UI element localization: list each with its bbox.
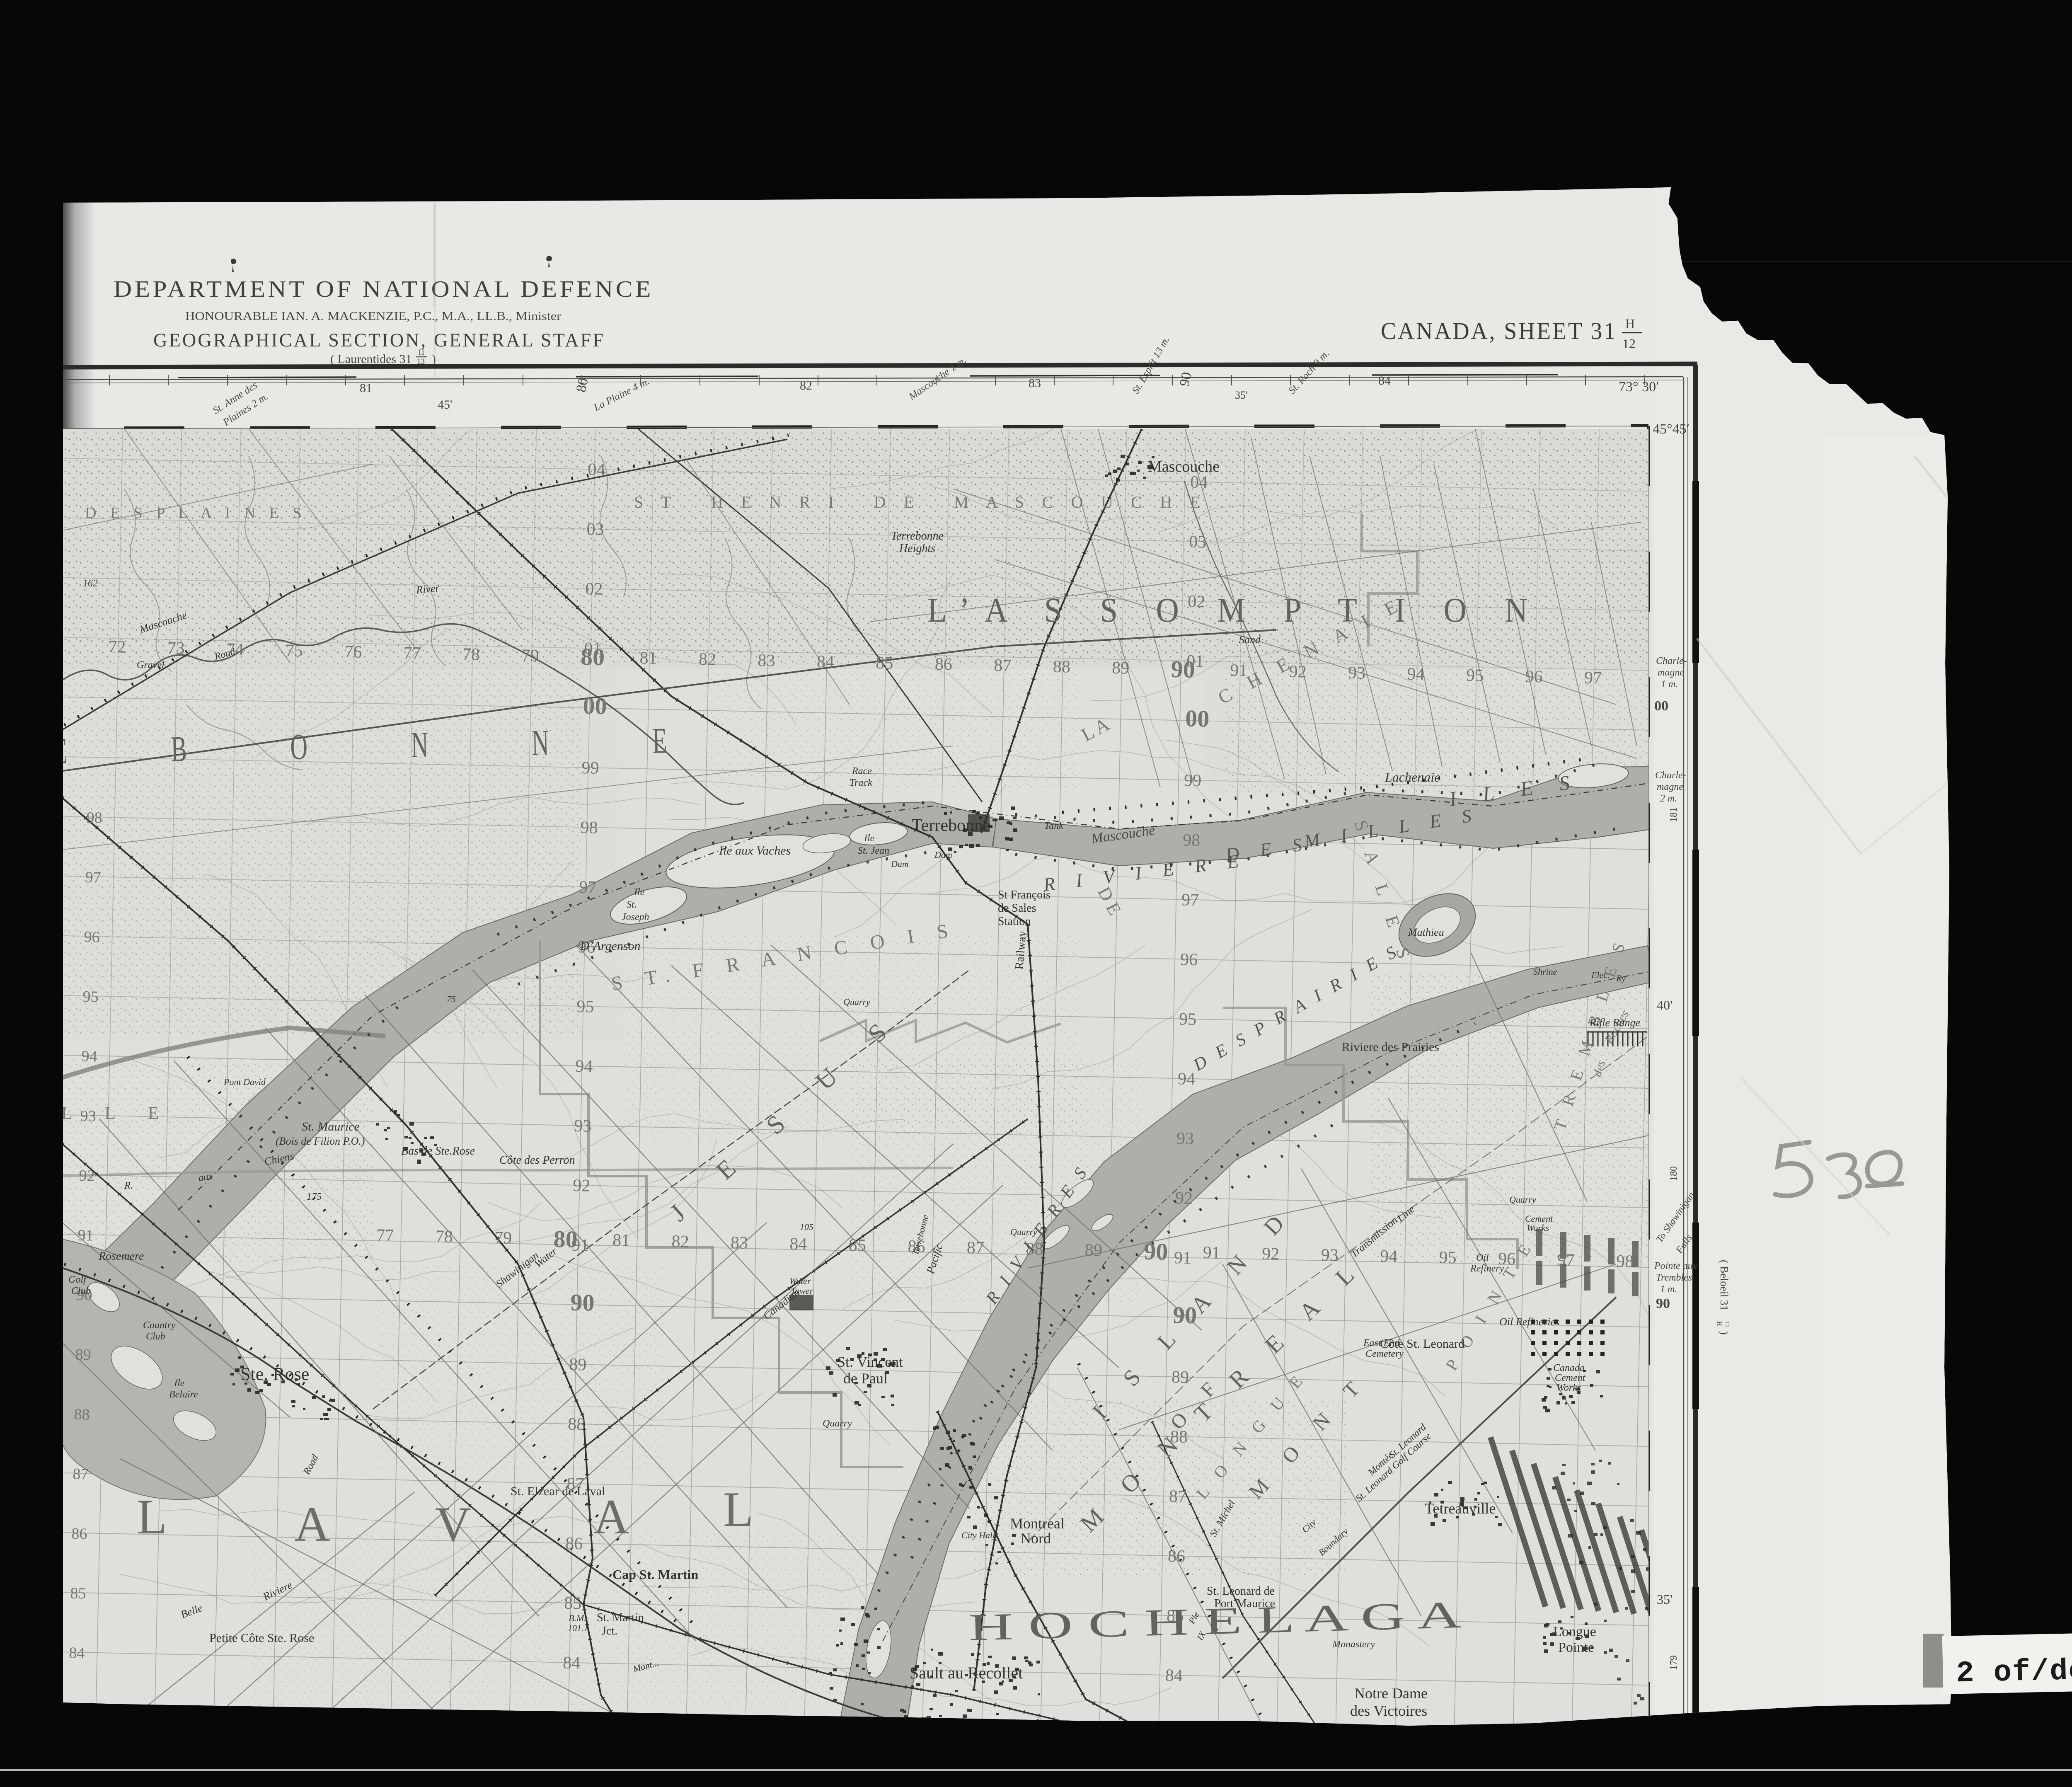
svg-text:84: 84	[563, 1654, 581, 1673]
svg-text:CANADA, SHEET 31: CANADA, SHEET 31	[1381, 317, 1617, 344]
svg-text:Sand: Sand	[1239, 634, 1261, 646]
svg-text:Ry: Ry	[1616, 973, 1626, 983]
svg-text:Oil: Oil	[1476, 1252, 1489, 1263]
svg-text:97: 97	[579, 878, 597, 897]
svg-text:Terrebonne: Terrebonne	[912, 816, 991, 835]
svg-text:82: 82	[699, 650, 716, 669]
svg-text:Côte des Perron: Côte des Perron	[499, 1154, 575, 1167]
svg-text:92: 92	[79, 1167, 95, 1185]
svg-text:2 m.: 2 m.	[1660, 793, 1677, 804]
svg-text:98: 98	[86, 809, 102, 827]
svg-text:Canada: Canada	[1553, 1363, 1585, 1373]
svg-text:Pointe: Pointe	[1558, 1640, 1594, 1655]
svg-text:180: 180	[1668, 1166, 1679, 1181]
svg-text:D E S P L A I N E S: D E S P L A I N E S	[85, 504, 307, 522]
svg-text:1 m.: 1 m.	[1660, 1284, 1677, 1295]
svg-text:A: A	[294, 1496, 330, 1552]
svg-text:93: 93	[1321, 1246, 1339, 1265]
svg-text:GEOGRAPHICAL SECTION, GENERAL: GEOGRAPHICAL SECTION, GENERAL STAFF	[153, 329, 605, 351]
svg-text:Heights: Heights	[899, 542, 935, 555]
svg-text:aux: aux	[198, 1171, 213, 1184]
svg-text:85: 85	[70, 1585, 86, 1603]
svg-text:Race: Race	[852, 766, 872, 777]
svg-text:87: 87	[994, 656, 1012, 676]
svg-text:96: 96	[1525, 667, 1543, 687]
svg-text:Cement: Cement	[1555, 1373, 1586, 1383]
svg-text:St. Leonard de: St. Leonard de	[1207, 1585, 1275, 1598]
svg-text:Refinery: Refinery	[1470, 1263, 1504, 1274]
svg-text:45°45′: 45°45′	[1653, 421, 1690, 437]
svg-text:84: 84	[789, 1235, 807, 1254]
svg-text:Charle-: Charle-	[1656, 656, 1687, 666]
svg-text:75: 75	[285, 641, 303, 661]
svg-text:Country: Country	[143, 1320, 176, 1331]
svg-text:03: 03	[586, 520, 604, 539]
svg-text:Quarry: Quarry	[843, 997, 870, 1007]
svg-text:93: 93	[1176, 1129, 1194, 1148]
svg-text:175: 175	[307, 1191, 322, 1202]
svg-text:85: 85	[849, 1236, 867, 1255]
svg-text:94: 94	[1178, 1069, 1196, 1089]
svg-text:L L E: L L E	[61, 1103, 173, 1123]
svg-text:1 m.: 1 m.	[1661, 679, 1678, 690]
svg-text:magne: magne	[1657, 782, 1683, 792]
svg-text:Club: Club	[71, 1286, 91, 1296]
svg-text:73° 30′: 73° 30′	[1619, 379, 1659, 395]
svg-text:St. Elzear de Laval: St. Elzear de Laval	[511, 1484, 605, 1498]
svg-text:95: 95	[1466, 666, 1484, 685]
svg-text:DEPARTMENT OF NATIONAL DEFENCE: DEPARTMENT OF NATIONAL DEFENCE	[114, 276, 654, 302]
svg-text:90: 90	[1656, 1296, 1670, 1311]
svg-text:91: 91	[77, 1227, 94, 1245]
svg-text:Tetreauville: Tetreauville	[1425, 1500, 1496, 1517]
svg-text:Charle-: Charle-	[1655, 770, 1686, 781]
svg-text:40': 40'	[1657, 998, 1673, 1012]
svg-text:( Beloeil 31: ( Beloeil 31	[1718, 1260, 1730, 1311]
svg-text:94: 94	[575, 1057, 593, 1076]
svg-text:Oil Refineries: Oil Refineries	[1499, 1316, 1559, 1328]
svg-text:Joseph: Joseph	[622, 912, 649, 923]
svg-text:Shrine: Shrine	[1533, 966, 1557, 977]
svg-text:95: 95	[1179, 1010, 1197, 1029]
svg-text:Quarry: Quarry	[823, 1418, 852, 1429]
svg-text:79: 79	[521, 646, 539, 666]
svg-text:92: 92	[1175, 1189, 1193, 1208]
svg-text:96: 96	[1180, 950, 1198, 969]
svg-text:86: 86	[934, 655, 952, 674]
svg-text:84: 84	[817, 652, 835, 672]
svg-text:83: 83	[731, 1233, 748, 1253]
svg-text:105: 105	[800, 1222, 813, 1232]
svg-text:HONOURABLE IAN. A. MACKENZIE,: HONOURABLE IAN. A. MACKENZIE, P.C., M.A.…	[185, 310, 562, 323]
svg-text:Mascouche: Mascouche	[1148, 458, 1220, 475]
svg-text:97: 97	[1557, 1251, 1575, 1270]
svg-text:03: 03	[1189, 533, 1207, 552]
svg-text:Works: Works	[1527, 1223, 1549, 1233]
svg-text:93: 93	[574, 1116, 592, 1136]
svg-text:Tank: Tank	[1044, 821, 1063, 831]
svg-text:Pont David: Pont David	[223, 1077, 266, 1087]
svg-text:81: 81	[639, 649, 657, 668]
svg-text:91: 91	[1174, 1248, 1192, 1268]
svg-text:River: River	[415, 582, 440, 596]
svg-text:04: 04	[588, 460, 605, 479]
svg-text:Dam: Dam	[934, 850, 952, 860]
svg-text:Ste. Rose: Ste. Rose	[240, 1364, 309, 1384]
svg-text:H: H	[1716, 1321, 1723, 1326]
svg-text:Trembles: Trembles	[1656, 1272, 1692, 1283]
svg-text:77: 77	[376, 1226, 394, 1245]
svg-text:(Bois de Filion P.O.): (Bois de Filion P.O.)	[276, 1135, 365, 1147]
svg-text:98: 98	[1616, 1252, 1634, 1271]
svg-text:de Paul: de Paul	[843, 1370, 888, 1387]
svg-text:01: 01	[1186, 652, 1204, 671]
svg-text:Station: Station	[998, 915, 1031, 928]
svg-text:St. Jean: St. Jean	[858, 845, 889, 856]
svg-text:Port Maurice: Port Maurice	[1214, 1597, 1275, 1610]
svg-text:H: H	[1625, 316, 1635, 331]
svg-text:79: 79	[494, 1228, 512, 1248]
svg-text:01: 01	[584, 639, 602, 659]
svg-text:97: 97	[1584, 668, 1602, 688]
svg-text:93: 93	[1348, 663, 1366, 683]
svg-text:Cap St. Martin: Cap St. Martin	[612, 1567, 698, 1582]
svg-text:91: 91	[571, 1236, 589, 1255]
svg-text:84: 84	[1165, 1666, 1183, 1685]
svg-text:2 of/de: 2 of/de	[1956, 1654, 2072, 1691]
svg-text:84: 84	[69, 1644, 85, 1662]
svg-text:86: 86	[71, 1525, 87, 1543]
svg-text:97: 97	[1181, 890, 1199, 910]
svg-text:Water: Water	[789, 1276, 811, 1286]
svg-text:Rifle Range: Rifle Range	[1589, 1017, 1640, 1029]
svg-text:Sault au Recollet: Sault au Recollet	[910, 1664, 1023, 1682]
svg-text:St François: St François	[998, 889, 1051, 901]
svg-text:Dam: Dam	[891, 859, 909, 869]
svg-text:81: 81	[360, 381, 372, 395]
svg-text:Mathieu: Mathieu	[1408, 926, 1444, 938]
svg-text:179: 179	[1668, 1655, 1679, 1670]
svg-text:St. Maurice: St. Maurice	[302, 1120, 360, 1133]
svg-text:Quarry: Quarry	[1509, 1194, 1536, 1205]
svg-text:Monastery: Monastery	[1332, 1639, 1375, 1650]
svg-text:V: V	[435, 1496, 471, 1552]
svg-text:89: 89	[75, 1346, 91, 1364]
svg-text:78: 78	[462, 645, 480, 664]
svg-text:Pointe aux: Pointe aux	[1654, 1261, 1697, 1271]
svg-text:81: 81	[612, 1231, 630, 1250]
svg-text:73: 73	[167, 639, 185, 658]
svg-text:45': 45'	[438, 398, 452, 412]
svg-text:85: 85	[564, 1594, 582, 1613]
svg-text:des Victoires: des Victoires	[1350, 1702, 1427, 1719]
svg-text:Rosemere: Rosemere	[98, 1250, 144, 1263]
svg-text:02: 02	[585, 579, 603, 599]
svg-text:Bas de Ste.Rose: Bas de Ste.Rose	[401, 1145, 475, 1157]
svg-text:R.: R.	[124, 1180, 133, 1191]
svg-text:88: 88	[74, 1406, 90, 1424]
svg-text:00: 00	[583, 692, 607, 719]
svg-text:89: 89	[1084, 1241, 1102, 1260]
svg-text:L: L	[723, 1482, 753, 1537]
svg-text:87: 87	[73, 1465, 89, 1483]
svg-text:Ile: Ile	[864, 833, 875, 844]
svg-text:de Sales: de Sales	[998, 902, 1036, 915]
svg-text:35': 35'	[1235, 389, 1248, 401]
svg-text:Quarry: Quarry	[1010, 1227, 1037, 1237]
svg-text:Ile aux Vaches: Ile aux Vaches	[719, 844, 791, 857]
svg-text:35': 35'	[1657, 1592, 1673, 1607]
svg-text:L’A S S O M P T I O N: L’A S S O M P T I O N	[927, 591, 1543, 630]
svg-text:Notre Dame: Notre Dame	[1354, 1685, 1428, 1702]
svg-text:Club: Club	[146, 1331, 165, 1342]
svg-text:76: 76	[344, 642, 362, 662]
svg-text:86: 86	[1167, 1547, 1185, 1566]
svg-text:B.M.: B.M.	[569, 1613, 586, 1623]
svg-text:95: 95	[1439, 1248, 1457, 1268]
svg-text:Riviere des Prairies: Riviere des Prairies	[1342, 1040, 1439, 1054]
svg-text:72: 72	[108, 637, 126, 657]
svg-text:88: 88	[1053, 657, 1070, 677]
svg-text:Ile: Ile	[174, 1378, 185, 1389]
svg-text:H: H	[419, 348, 424, 357]
svg-text:Track: Track	[850, 777, 872, 788]
svg-text:87: 87	[966, 1238, 984, 1258]
svg-text:00: 00	[1185, 705, 1210, 732]
svg-text:94: 94	[1380, 1247, 1398, 1266]
svg-text:91: 91	[1203, 1243, 1220, 1263]
svg-text:89: 89	[1112, 659, 1130, 678]
svg-text:78: 78	[435, 1227, 453, 1247]
svg-text:82: 82	[800, 379, 812, 392]
svg-text:82: 82	[671, 1232, 689, 1252]
svg-text:D’Argenson: D’Argenson	[580, 939, 641, 953]
svg-text:Nord: Nord	[1020, 1530, 1051, 1547]
svg-text:83: 83	[758, 651, 775, 671]
svg-text:96: 96	[84, 928, 100, 946]
svg-text:90: 90	[1144, 1238, 1168, 1265]
svg-text:101.1: 101.1	[568, 1623, 588, 1633]
svg-text:( Laurentides 31: ( Laurentides 31	[330, 352, 412, 366]
svg-text:Gravel: Gravel	[137, 660, 165, 671]
svg-text:92: 92	[573, 1176, 591, 1196]
svg-text:77: 77	[403, 644, 421, 663]
svg-text:): )	[1718, 1331, 1730, 1335]
svg-text:84: 84	[1378, 374, 1391, 387]
svg-text:04: 04	[1190, 473, 1208, 492]
svg-text:Belaire: Belaire	[169, 1389, 198, 1400]
svg-text:St.: St.	[627, 899, 637, 910]
svg-text:89: 89	[569, 1355, 587, 1375]
svg-text:L: L	[137, 1489, 167, 1544]
svg-text:88: 88	[568, 1415, 586, 1434]
svg-text:162: 162	[83, 578, 98, 589]
svg-text:95: 95	[82, 988, 99, 1006]
svg-text:11: 11	[1723, 1321, 1730, 1327]
svg-text:86: 86	[565, 1534, 583, 1554]
svg-text:98: 98	[580, 818, 598, 838]
svg-text:83: 83	[1029, 376, 1041, 390]
svg-text:98: 98	[1183, 831, 1201, 850]
svg-text:12: 12	[1622, 336, 1636, 351]
svg-text:Montreal: Montreal	[1010, 1515, 1065, 1532]
svg-text:magne: magne	[1658, 667, 1684, 678]
svg-text:99: 99	[1184, 771, 1202, 790]
svg-text:95: 95	[576, 997, 594, 1017]
svg-text:94: 94	[1407, 665, 1425, 684]
svg-text:Côte St. Leonard: Côte St. Leonard	[1380, 1337, 1464, 1351]
svg-text:87: 87	[1169, 1487, 1187, 1506]
svg-text:181: 181	[1668, 807, 1679, 822]
svg-text:97: 97	[85, 869, 101, 886]
svg-text:85: 85	[876, 654, 893, 673]
svg-text:94: 94	[81, 1048, 97, 1065]
svg-text:St. Martin: St. Martin	[597, 1611, 644, 1624]
svg-text:Longue: Longue	[1553, 1624, 1596, 1639]
svg-text:89: 89	[1172, 1368, 1189, 1387]
svg-text:Jct.: Jct.	[602, 1625, 617, 1637]
svg-text:Works: Works	[1556, 1383, 1581, 1393]
svg-text:St. Vincent: St. Vincent	[837, 1354, 903, 1370]
svg-text:Elec.: Elec.	[1591, 970, 1610, 980]
svg-text:75: 75	[447, 994, 456, 1004]
svg-text:00: 00	[1654, 698, 1668, 714]
svg-text:City Hall: City Hall	[961, 1530, 995, 1540]
svg-text:Petite Côte Ste. Rose: Petite Côte Ste. Rose	[209, 1631, 314, 1645]
svg-text:Terrebonne: Terrebonne	[891, 530, 944, 542]
svg-text:90: 90	[570, 1289, 595, 1316]
svg-text:Lachenaie: Lachenaie	[1385, 770, 1440, 785]
svg-text:Ile: Ile	[634, 887, 645, 898]
svg-text:Golf: Golf	[68, 1274, 87, 1285]
